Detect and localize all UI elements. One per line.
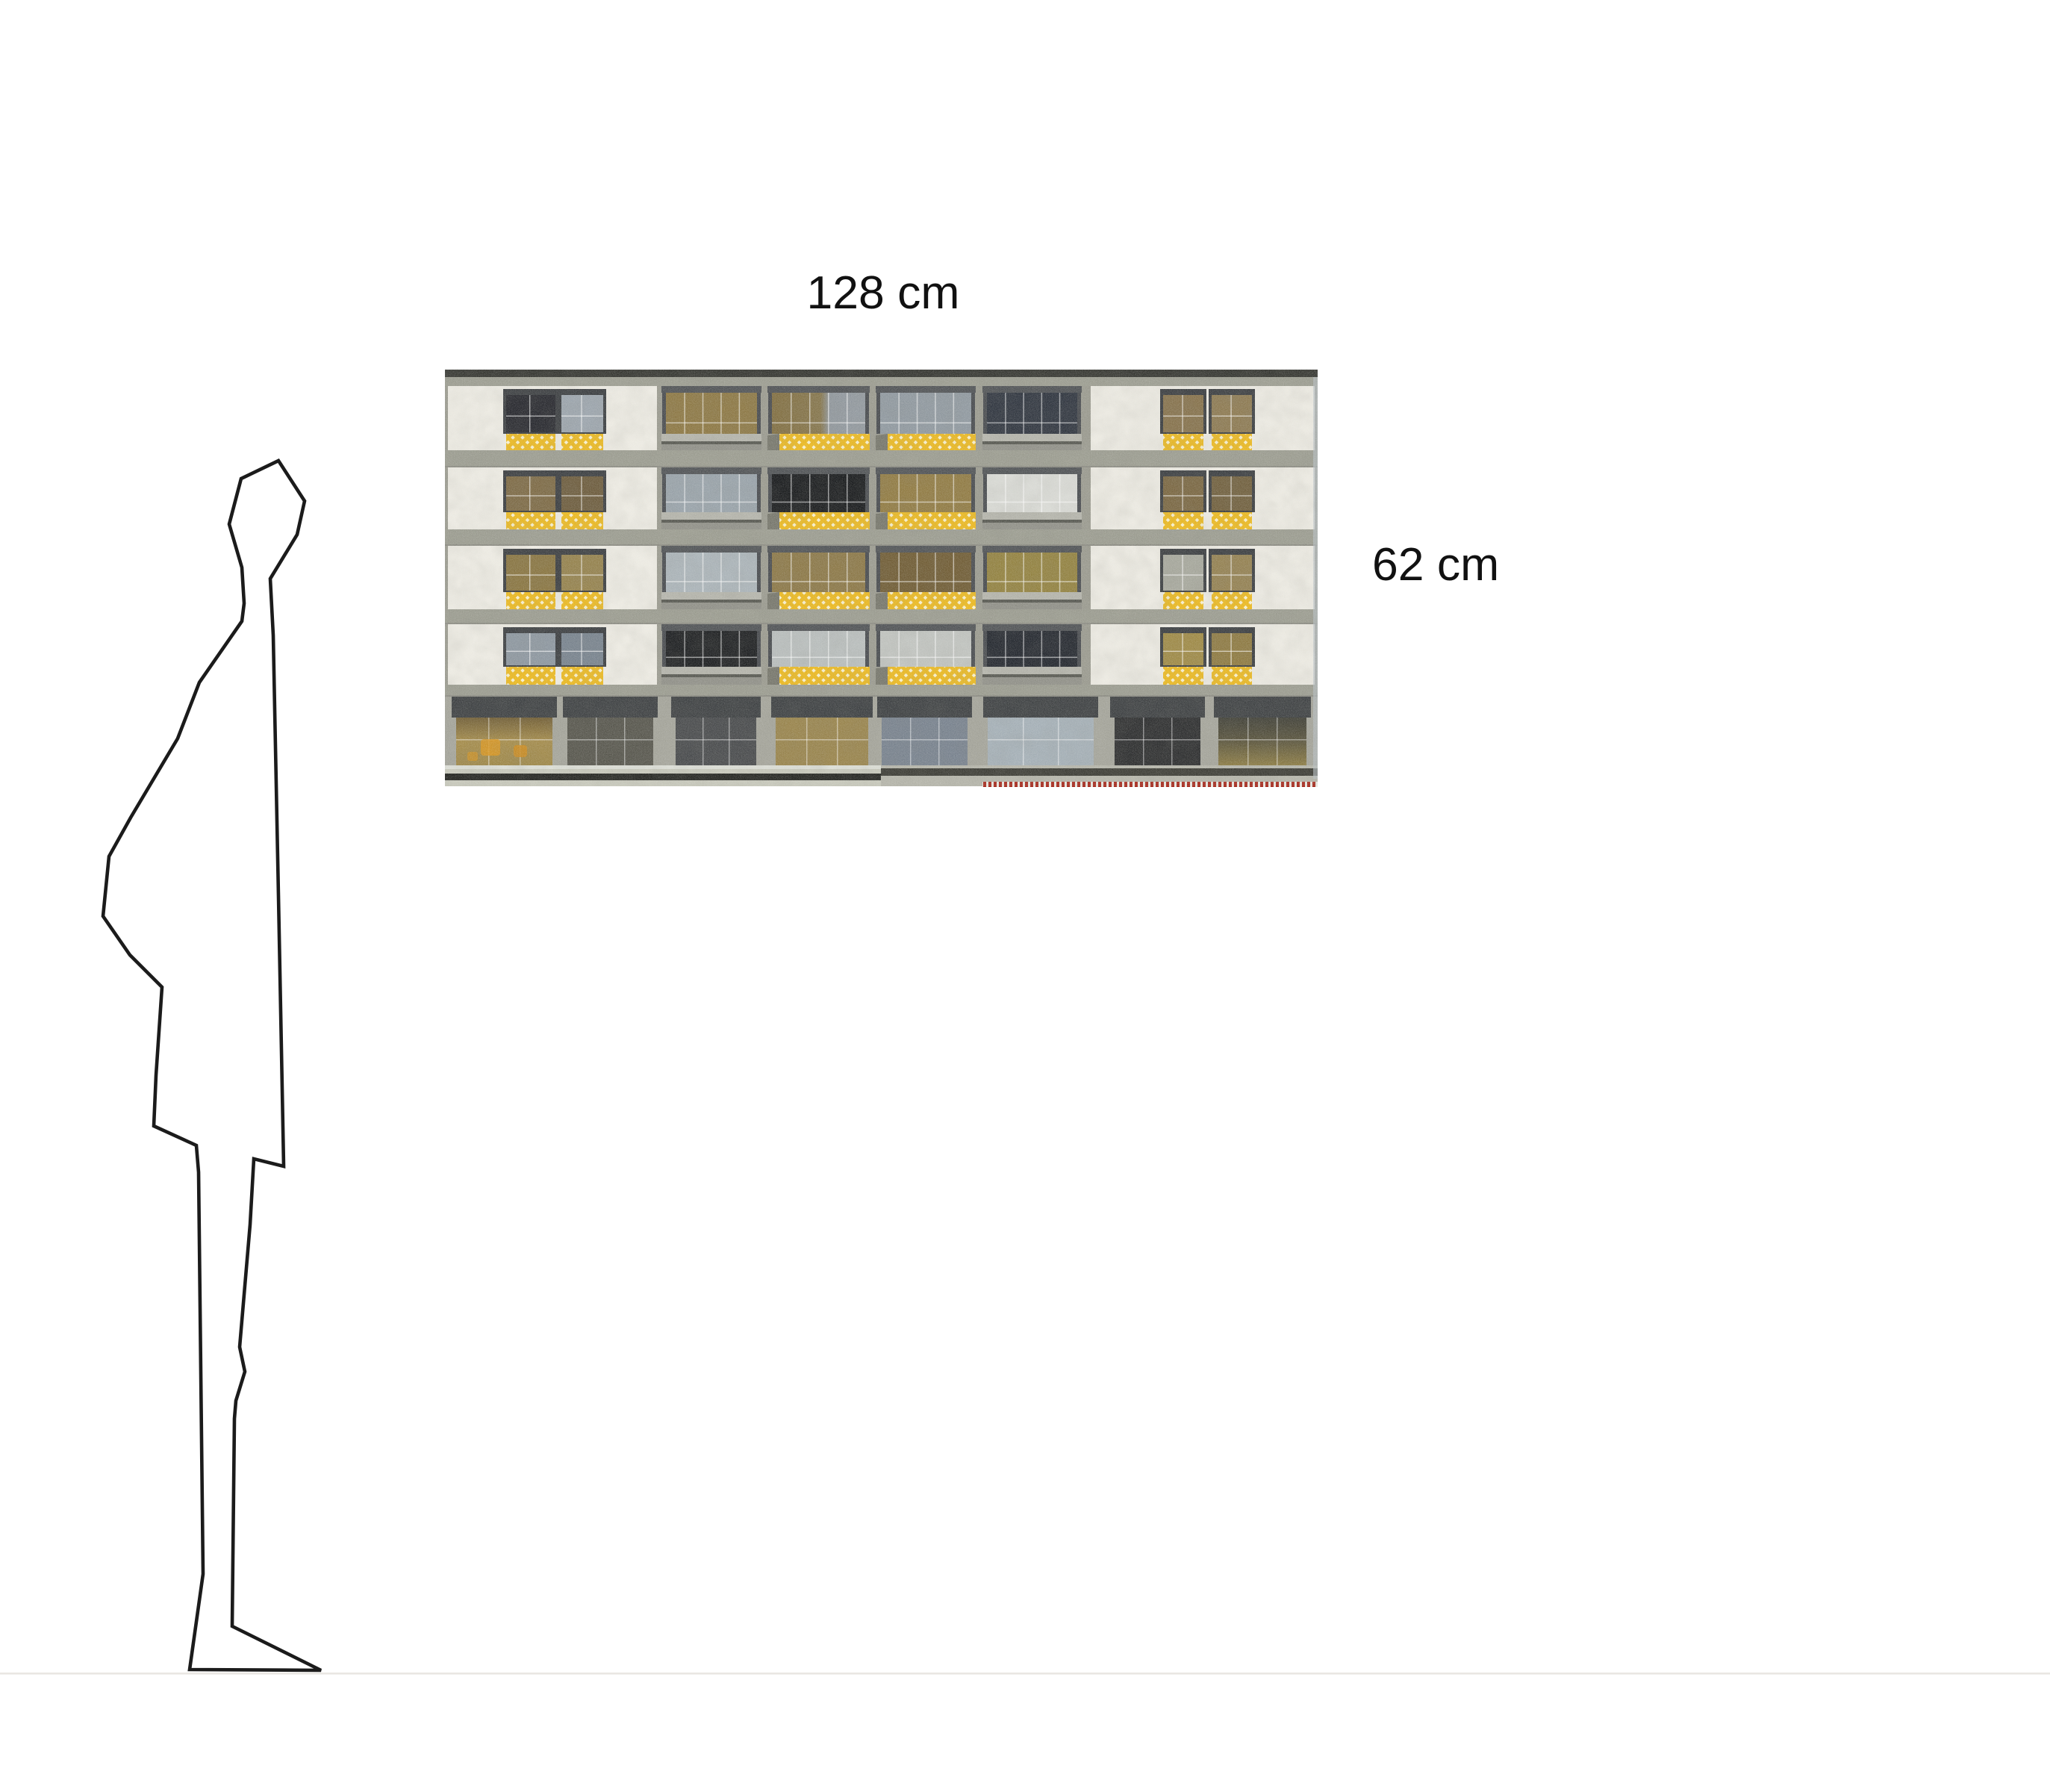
svg-text:128 cm: 128 cm [807,267,960,319]
svg-text:62 cm: 62 cm [1372,538,1499,591]
